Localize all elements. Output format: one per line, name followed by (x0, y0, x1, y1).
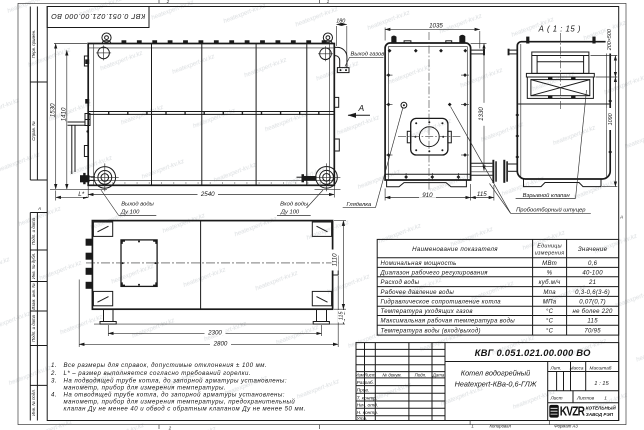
svg-text:Нач. отд.: Нач. отд. (357, 403, 379, 409)
svg-text:Масштаб: Масштаб (590, 365, 612, 370)
svg-text:КВГ 0.051.021.00.000 ВО: КВГ 0.051.021.00.000 ВО (475, 347, 592, 358)
svg-text:2.: 2. (50, 370, 57, 377)
svg-text:1090: 1090 (608, 113, 614, 125)
svg-text:А: А (357, 103, 364, 113)
svg-text:Разраб.: Разраб. (357, 380, 374, 386)
svg-text:L* – размер выполняется соглас: L* – размер выполняется согласно требова… (64, 370, 251, 377)
svg-text:Диапазон рабочего регулировани: Диапазон рабочего регулирования (380, 271, 489, 277)
svg-text:Лист: Лист (363, 373, 376, 378)
svg-text:2800: 2800 (213, 341, 228, 348)
svg-text:Формат А3: Формат А3 (554, 423, 578, 428)
svg-text:1 : 15: 1 : 15 (594, 381, 609, 387)
svg-text:Ду 100: Ду 100 (120, 210, 140, 216)
svg-text:%: % (547, 271, 553, 277)
svg-text:измерения: измерения (535, 251, 565, 257)
svg-text:Ду 100: Ду 100 (280, 210, 300, 216)
svg-text:115: 115 (587, 319, 598, 325)
svg-text:клапан Ду не менее 40 и обвод: клапан Ду не менее 40 и обвод с обратным… (64, 405, 306, 412)
svg-text:40-100: 40-100 (582, 271, 603, 277)
svg-text:0,07(0,7): 0,07(0,7) (579, 300, 606, 306)
svg-text:Пробоотборный штуцер: Пробоотборный штуцер (516, 207, 586, 214)
svg-text:2300: 2300 (207, 330, 222, 337)
svg-text:ЗАВОД РЭП: ЗАВОД РЭП (586, 412, 614, 417)
svg-text:1530: 1530 (49, 103, 56, 117)
svg-text:Вход воды: Вход воды (280, 202, 309, 208)
svg-text:1035: 1035 (429, 23, 443, 30)
svg-text:Рабочее давление воды: Рабочее давление воды (381, 290, 455, 296)
svg-text:0,6: 0,6 (588, 261, 598, 267)
svg-text:Инв. № дубл.: Инв. № дубл. (31, 253, 36, 279)
svg-text:1: 1 (604, 396, 607, 401)
svg-text:Масса: Масса (570, 365, 584, 370)
svg-text:Все размеры для справок, допус: Все размеры для справок, допустимые откл… (64, 362, 268, 369)
svg-text:Н. контр.: Н. контр. (357, 410, 379, 416)
svg-text:°С: °С (546, 328, 554, 334)
svg-text:180: 180 (336, 19, 345, 25)
svg-text:Выход газов: Выход газов (351, 52, 385, 58)
svg-text:А: А (37, 206, 41, 211)
svg-text:Температура воды (вход/выход): Температура воды (вход/выход) (381, 328, 481, 334)
svg-text:1410: 1410 (60, 107, 67, 121)
svg-text:Инв. № подл.: Инв. № подл. (31, 389, 36, 416)
svg-text:Перв. примен.: Перв. примен. (31, 30, 36, 59)
svg-text:3.: 3. (51, 378, 57, 385)
svg-text:Утв.: Утв. (357, 416, 368, 422)
svg-text:2540: 2540 (200, 191, 215, 198)
svg-text:А: А (619, 215, 623, 220)
svg-text:Листов: Листов (576, 396, 595, 401)
svg-text:°С: °С (546, 309, 554, 315)
svg-text:КОТЕЛЬНЫЙ: КОТЕЛЬНЫЙ (586, 404, 617, 411)
svg-text:Мпа: Мпа (543, 290, 556, 296)
svg-text:Гидравлическое сопротивление к: Гидравлическое сопротивление котла (381, 300, 502, 306)
svg-text:не более 220: не более 220 (572, 309, 613, 315)
svg-text:70/95: 70/95 (584, 328, 601, 334)
svg-text:115: 115 (339, 311, 345, 321)
svg-text:Температура уходящих газов: Температура уходящих газов (381, 309, 473, 315)
svg-text:1.: 1. (51, 362, 57, 369)
svg-text:Единицы: Единицы (537, 244, 562, 250)
svg-text:Расход воды: Расход воды (381, 280, 420, 286)
svg-text:Подп. и дата: Подп. и дата (31, 217, 36, 245)
svg-text:Лист: Лист (549, 396, 562, 401)
svg-text:Наименование показателя: Наименование показателя (412, 246, 498, 253)
svg-text:1110: 1110 (332, 253, 339, 266)
svg-text:4.: 4. (51, 392, 57, 399)
svg-text:Копировал: Копировал (490, 423, 512, 428)
svg-text:МВт: МВт (542, 261, 557, 267)
svg-text:Подп. и дата: Подп. и дата (31, 314, 36, 342)
svg-text:Пров.: Пров. (357, 388, 370, 394)
svg-text:Справ. №: Справ. № (31, 121, 36, 141)
svg-text:Дата: Дата (432, 373, 445, 378)
svg-text:№ докум.: № докум. (382, 373, 401, 378)
svg-text:L*: L* (78, 191, 84, 198)
svg-text:Взрывной клапан: Взрывной клапан (523, 192, 571, 199)
svg-text:Номинальная мощность: Номинальная мощность (381, 261, 457, 267)
svg-text:21: 21 (588, 280, 596, 286)
svg-text:Выход воды: Выход воды (121, 202, 154, 208)
svg-text:Котел водогрейный: Котел водогрейный (461, 368, 530, 377)
svg-text:куб.м/ч: куб.м/ч (539, 280, 561, 286)
svg-text:А ( 1 : 15 ): А ( 1 : 15 ) (538, 25, 581, 34)
svg-text:910: 910 (422, 192, 433, 199)
svg-text:KVZR: KVZR (560, 405, 585, 419)
svg-text:МПа: МПа (543, 300, 557, 306)
svg-text:Т. контр.: Т. контр. (357, 395, 378, 401)
svg-text:Максимальная рабочая температу: Максимальная рабочая температура воды (381, 319, 516, 325)
svg-text:Взам. инв. №: Взам. инв. № (31, 283, 36, 310)
svg-text:Лит.: Лит. (550, 365, 562, 370)
svg-text:КВГ 0.051.021.00.000 ВО: КВГ 0.051.021.00.000 ВО (51, 12, 146, 21)
svg-text:°С: °С (546, 319, 554, 325)
svg-text:200×500: 200×500 (607, 29, 613, 51)
svg-text:0,3-0,6(3-6): 0,3-0,6(3-6) (575, 290, 610, 296)
svg-text:Heatexpert-КВа-0,6-ГЛЖ: Heatexpert-КВа-0,6-ГЛЖ (455, 380, 538, 389)
svg-text:115: 115 (477, 191, 487, 198)
svg-text:Значение: Значение (578, 246, 608, 253)
svg-text:Подп.: Подп. (415, 373, 427, 378)
svg-text:1330: 1330 (478, 107, 485, 121)
svg-text:Гляделка: Гляделка (347, 202, 373, 208)
